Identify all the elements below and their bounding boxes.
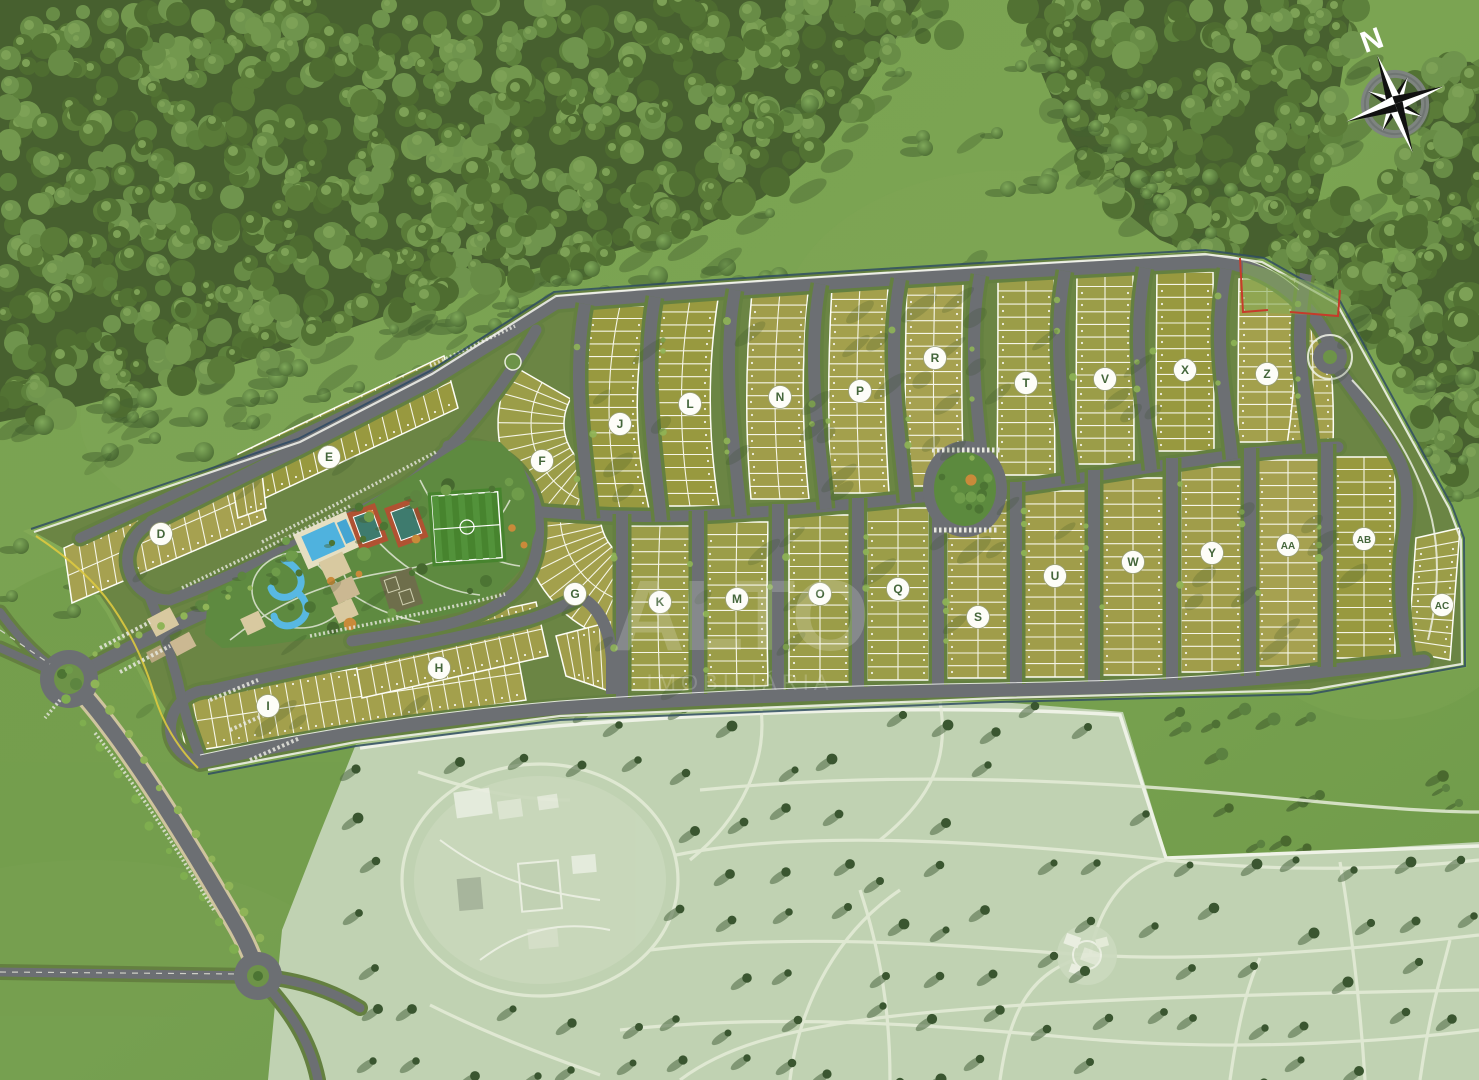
svg-text:N: N bbox=[776, 390, 785, 404]
svg-text:Y: Y bbox=[1208, 546, 1216, 560]
svg-text:R: R bbox=[931, 351, 940, 365]
svg-text:G: G bbox=[570, 587, 579, 601]
svg-text:L: L bbox=[686, 397, 693, 411]
svg-text:AC: AC bbox=[1435, 601, 1449, 612]
svg-text:X: X bbox=[1181, 363, 1189, 377]
svg-text:J: J bbox=[617, 417, 624, 431]
svg-text:S: S bbox=[974, 610, 982, 624]
svg-text:D: D bbox=[157, 527, 166, 541]
svg-text:T: T bbox=[1022, 376, 1030, 390]
svg-text:I: I bbox=[266, 699, 269, 713]
svg-text:IMOBILIÁRIA: IMOBILIÁRIA bbox=[646, 670, 833, 695]
svg-text:E: E bbox=[325, 450, 333, 464]
svg-text:U: U bbox=[1051, 569, 1060, 583]
svg-text:W: W bbox=[1127, 555, 1139, 569]
svg-text:Q: Q bbox=[893, 582, 902, 596]
svg-text:AA: AA bbox=[1281, 541, 1295, 552]
svg-text:V: V bbox=[1101, 372, 1109, 386]
svg-text:ALTO: ALTO bbox=[613, 560, 868, 672]
svg-text:F: F bbox=[538, 454, 545, 468]
svg-text:Z: Z bbox=[1263, 367, 1270, 381]
svg-text:P: P bbox=[856, 384, 864, 398]
svg-text:H: H bbox=[435, 661, 444, 675]
svg-text:AB: AB bbox=[1357, 535, 1371, 546]
